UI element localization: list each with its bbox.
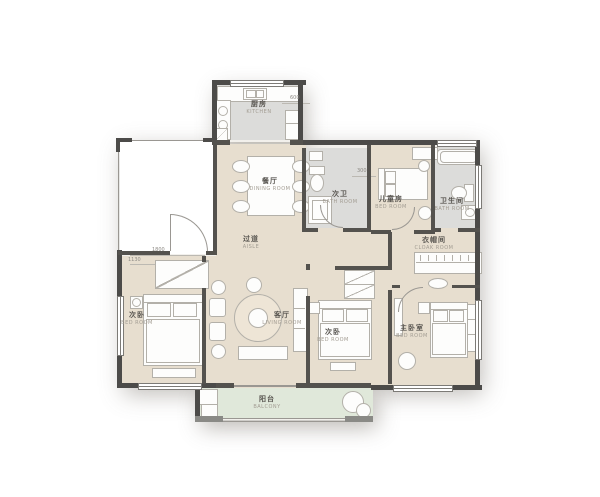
dining-chair xyxy=(232,160,250,173)
wall-entry-top-line xyxy=(118,140,216,141)
room-name-zh: 卫生间 xyxy=(417,197,487,206)
wall-bath-bottom xyxy=(433,228,441,232)
room-name-en: BED ROOM xyxy=(377,333,447,340)
wall-corner-block xyxy=(118,138,132,142)
nightstand-lamp xyxy=(132,298,141,307)
bed-headboard xyxy=(430,302,468,310)
room-name-en: LIVING ROOM xyxy=(247,320,317,327)
dimension-text: 300 xyxy=(357,168,367,174)
armchair xyxy=(209,322,226,341)
pillow xyxy=(449,310,464,322)
kitchen-sink-basin xyxy=(256,90,264,98)
wall-cloak-master-stub xyxy=(452,285,480,288)
wardrobe-icon xyxy=(344,270,375,285)
bedroom-bench xyxy=(152,368,196,378)
room-name-zh: 主卧室 xyxy=(377,324,447,333)
pillow xyxy=(433,310,448,322)
wall-left-bed-right xyxy=(202,288,206,384)
wall-living-balcony-stub xyxy=(216,383,234,388)
pillow xyxy=(173,303,197,317)
window-left-bedroom-bottom xyxy=(138,383,202,390)
hanger-tick xyxy=(452,255,453,261)
wall-bath-bottom xyxy=(458,228,480,232)
window-kitchen xyxy=(230,80,284,87)
sofa-cushion-line xyxy=(294,308,305,309)
dining-chair xyxy=(232,200,250,213)
balcony-glass-rail xyxy=(222,421,346,422)
wall-mid-bed-top xyxy=(335,266,392,270)
wall-cloak-master-stub xyxy=(392,285,400,288)
wall-entry-left-line xyxy=(118,140,119,252)
wall-kitchen-left xyxy=(212,80,217,144)
wall-kitchen-bottom-stub xyxy=(290,140,303,145)
bed-headboard xyxy=(143,294,203,303)
pillow xyxy=(346,309,368,322)
bed-headboard xyxy=(318,300,372,309)
room-name-zh: 客厅 xyxy=(247,311,317,320)
bath-shelf xyxy=(309,151,323,161)
room-name-en: BED ROOM xyxy=(298,337,368,344)
hanger-tick xyxy=(460,255,461,261)
balcony-rail-post xyxy=(195,416,223,422)
room-name-en: KITCHEN xyxy=(224,109,294,116)
room-name-en: BED ROOM xyxy=(356,204,426,211)
room-name-zh: 厨房 xyxy=(224,100,294,109)
floor-lamp-icon xyxy=(246,277,262,293)
room-name-en: DINING ROOM xyxy=(235,186,305,193)
room-label-master: 主卧室 BED ROOM xyxy=(377,324,447,340)
cloak-wardrobe xyxy=(414,252,482,274)
fridge-divider xyxy=(286,123,298,124)
window-master-right xyxy=(475,300,482,360)
desk-chair xyxy=(418,160,430,172)
hanger-tick xyxy=(444,255,445,261)
room-label-aisle: 过道 AISLE xyxy=(216,235,286,251)
side-table xyxy=(211,280,226,295)
dimension-line xyxy=(130,255,205,256)
room-label-living: 客厅 LIVING ROOM xyxy=(247,311,317,327)
hanger-tick xyxy=(468,255,469,261)
wall-corner-block xyxy=(116,138,120,152)
room-label-left-bedroom: 次卧 BED ROOM xyxy=(102,311,172,327)
lounge-chair xyxy=(398,352,416,370)
wardrobe-icon xyxy=(155,260,209,289)
room-name-en: AISLE xyxy=(216,244,286,251)
wall-kitchen-right xyxy=(298,80,303,144)
washing-machine-icon xyxy=(199,389,218,405)
room-name-zh: 儿童房 xyxy=(356,195,426,204)
dimension-text: 600 xyxy=(290,95,300,101)
window-bathroom xyxy=(437,140,477,147)
wall-aux-bath-bottom xyxy=(343,228,371,232)
room-label-cloak: 衣帽间 CLOAK ROOM xyxy=(399,236,469,252)
wardrobe-rail xyxy=(416,262,478,263)
tv-bench xyxy=(238,346,288,360)
room-name-en: BED ROOM xyxy=(102,320,172,327)
wall-aux-bath-right xyxy=(367,145,371,232)
pillow xyxy=(322,309,344,322)
room-label-mid-bedroom: 次卧 BED ROOM xyxy=(298,328,368,344)
room-name-zh: 过道 xyxy=(216,235,286,244)
pillow xyxy=(385,171,396,184)
kitchen-sink-basin xyxy=(246,90,256,98)
door-leaf xyxy=(170,214,171,251)
dimension-text: 1130 xyxy=(128,257,141,263)
wall-living-balcony-stub xyxy=(296,383,371,388)
wall-mid-bed-left-stub xyxy=(306,264,310,270)
bedroom-bench xyxy=(330,362,356,371)
room-name-zh: 阳台 xyxy=(232,395,302,404)
room-label-dining: 餐厅 DINING ROOM xyxy=(235,177,305,193)
balcony-rail-post xyxy=(345,416,373,422)
wall-kids-bath xyxy=(431,145,435,230)
balcony-glass-rail xyxy=(222,418,346,419)
balcony-sliding-door xyxy=(234,385,296,387)
hanger-tick xyxy=(436,255,437,261)
room-name-zh: 次卧 xyxy=(298,328,368,337)
wall-aux-bath-bottom xyxy=(302,228,318,232)
wall-left-bed-right-stub xyxy=(202,256,206,262)
room-name-zh: 次卧 xyxy=(102,311,172,320)
floor-plan: 厨房 KITCHEN 餐厅 DINING ROOM 次卫 BATH ROOM 儿… xyxy=(0,0,600,497)
dining-chair xyxy=(292,160,310,173)
window-master-bottom xyxy=(393,385,453,392)
hanger-tick xyxy=(420,255,421,261)
ottoman-icon xyxy=(428,278,448,289)
room-name-en: CLOAK ROOM xyxy=(399,245,469,252)
room-name-en: BATH ROOM xyxy=(417,206,487,213)
dimension-line xyxy=(352,176,376,177)
hanger-tick xyxy=(428,255,429,261)
room-label-kitchen: 厨房 KITCHEN xyxy=(224,100,294,116)
armchair xyxy=(209,298,226,317)
room-label-balcony: 阳台 BALCONY xyxy=(232,395,302,411)
wall-entry-bottom xyxy=(206,251,217,255)
room-name-en: BALCONY xyxy=(232,404,302,411)
wall-kids-bottom xyxy=(414,230,435,234)
wall-kitchen-bottom-stub xyxy=(212,140,230,145)
room-label-kids: 儿童房 BED ROOM xyxy=(356,195,426,211)
room-name-zh: 餐厅 xyxy=(235,177,305,186)
dimension-text: 1800 xyxy=(152,247,165,253)
bathtub-inner xyxy=(440,151,477,163)
side-table xyxy=(211,344,226,359)
wardrobe-icon xyxy=(344,284,375,299)
room-label-bathroom: 卫生间 BATH ROOM xyxy=(417,197,487,213)
wall-cloak-left xyxy=(388,232,392,266)
room-name-zh: 衣帽间 xyxy=(399,236,469,245)
